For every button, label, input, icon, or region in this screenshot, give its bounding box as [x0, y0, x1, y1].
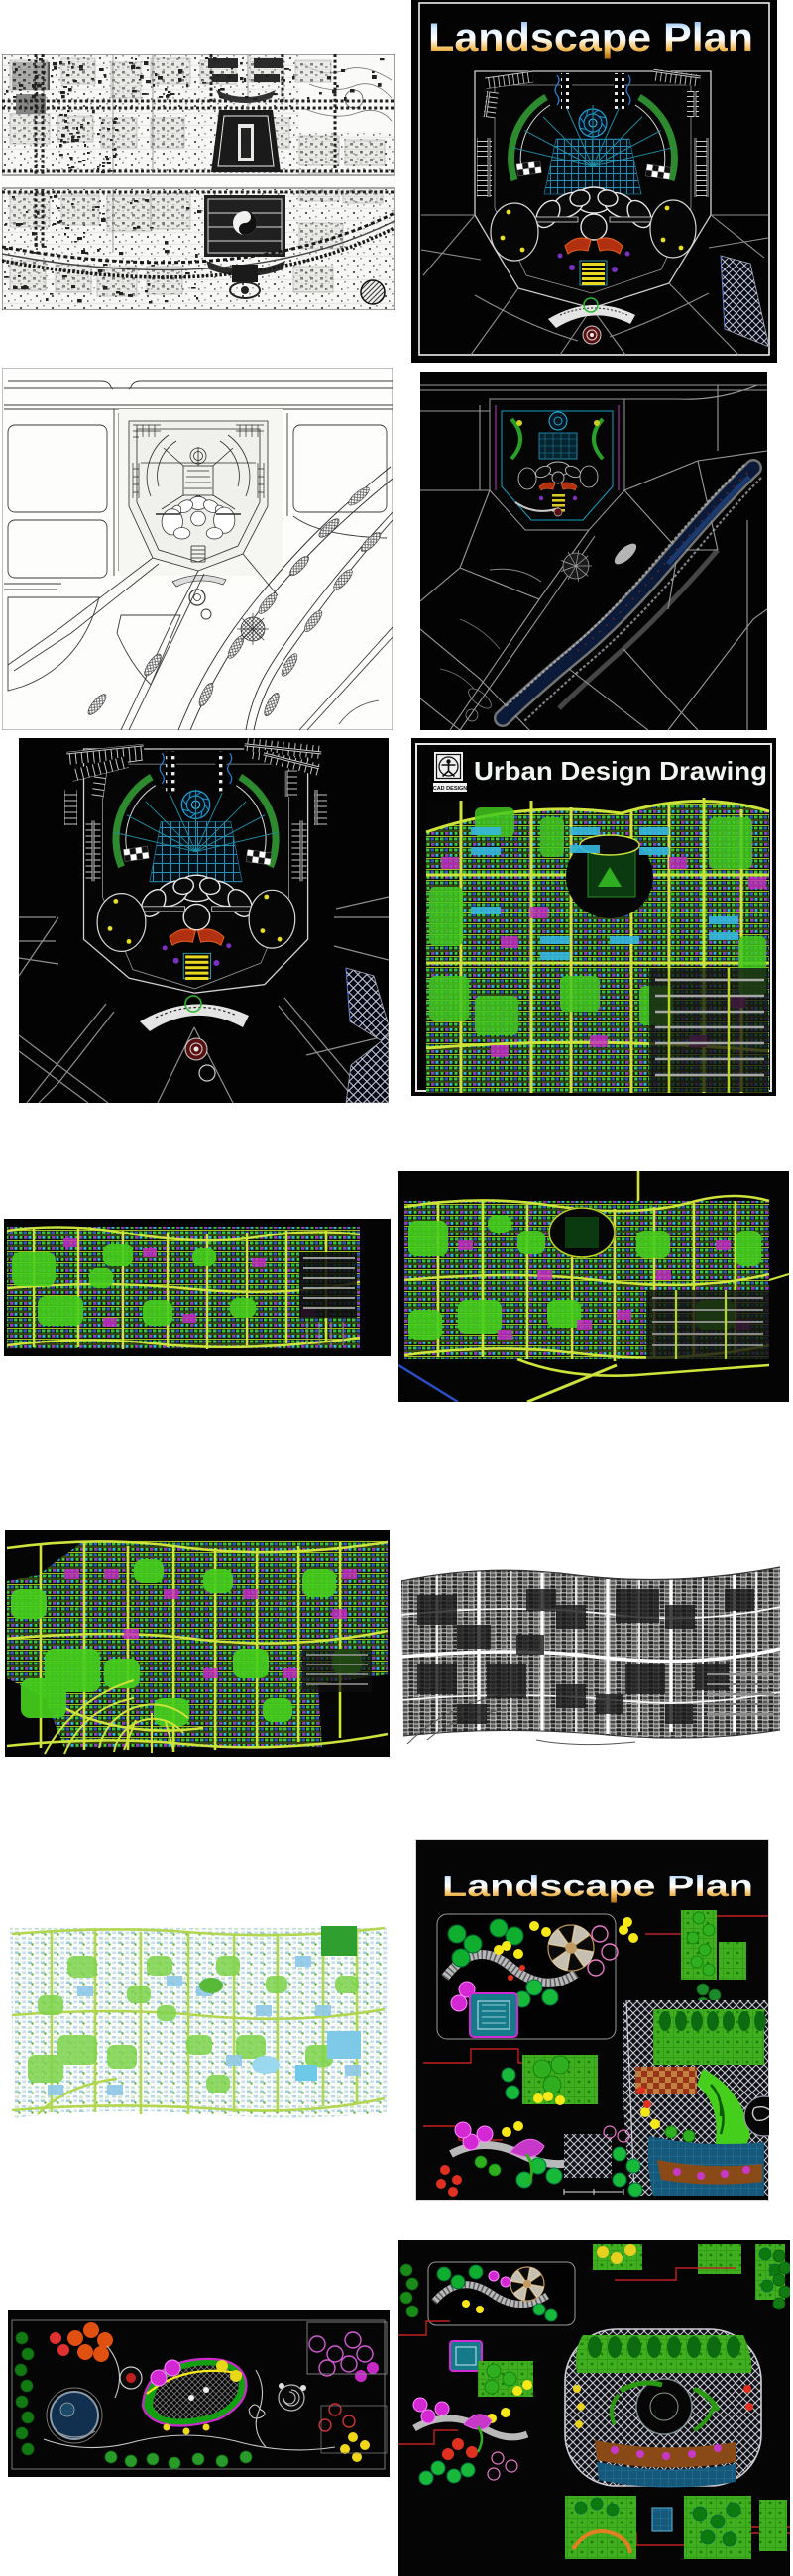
svg-text:Urban Design Drawing: Urban Design Drawing: [474, 756, 767, 786]
svg-text:Landscape Plan: Landscape Plan: [428, 16, 753, 59]
svg-text:Landscape Plan: Landscape Plan: [442, 1869, 753, 1903]
svg-text:CAD DESIGN: CAD DESIGN: [433, 786, 468, 792]
